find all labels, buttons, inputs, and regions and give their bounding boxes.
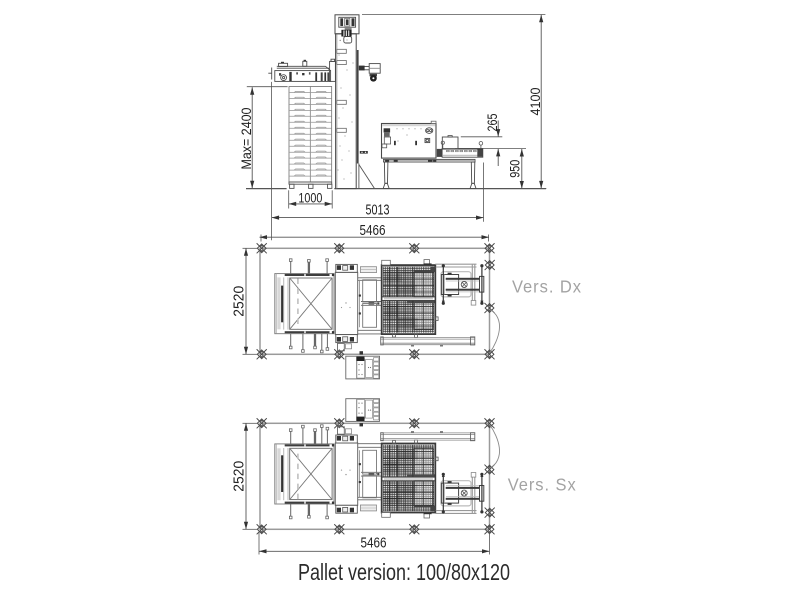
- svg-text:5466: 5466: [360, 223, 386, 239]
- svg-text:Vers. Sx: Vers. Sx: [508, 475, 577, 495]
- svg-text:Vers. Dx: Vers. Dx: [512, 277, 582, 297]
- svg-text:5466: 5466: [361, 535, 387, 551]
- svg-text:2520: 2520: [231, 286, 247, 317]
- svg-text:Max= 2400: Max= 2400: [239, 108, 254, 170]
- svg-text:Pallet version: 100/80x120: Pallet version: 100/80x120: [298, 559, 510, 585]
- svg-text:5013: 5013: [366, 203, 390, 219]
- svg-text:4100: 4100: [528, 88, 543, 116]
- svg-text:265: 265: [485, 114, 500, 132]
- svg-text:950: 950: [507, 160, 522, 178]
- svg-text:2520: 2520: [231, 461, 247, 492]
- svg-text:1000: 1000: [298, 190, 322, 205]
